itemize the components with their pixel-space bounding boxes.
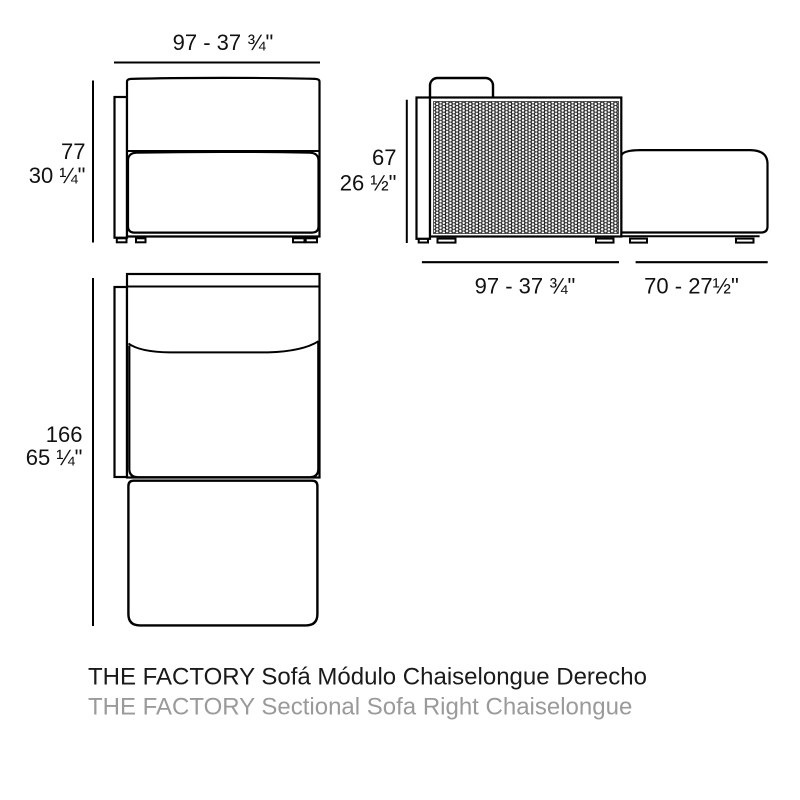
svg-text:67: 67 [372,145,396,170]
svg-text:70 - 27½": 70 - 27½" [644,274,739,299]
svg-text:65 ¼": 65 ¼" [26,445,83,470]
svg-text:26 ½": 26 ½" [340,171,397,196]
svg-text:166: 166 [46,422,83,447]
svg-text:30 ¼": 30 ¼" [29,163,86,188]
svg-text:77: 77 [61,139,85,164]
svg-text:THE FACTORY Sectional Sofa Rig: THE FACTORY Sectional Sofa Right Chaisel… [88,694,632,721]
svg-text:97 - 37 ¾": 97 - 37 ¾" [173,30,274,55]
svg-text:97 - 37 ¾": 97 - 37 ¾" [475,274,576,299]
svg-text:THE FACTORY Sofá Módulo Chaise: THE FACTORY Sofá Módulo Chaiselongue Der… [88,664,647,691]
